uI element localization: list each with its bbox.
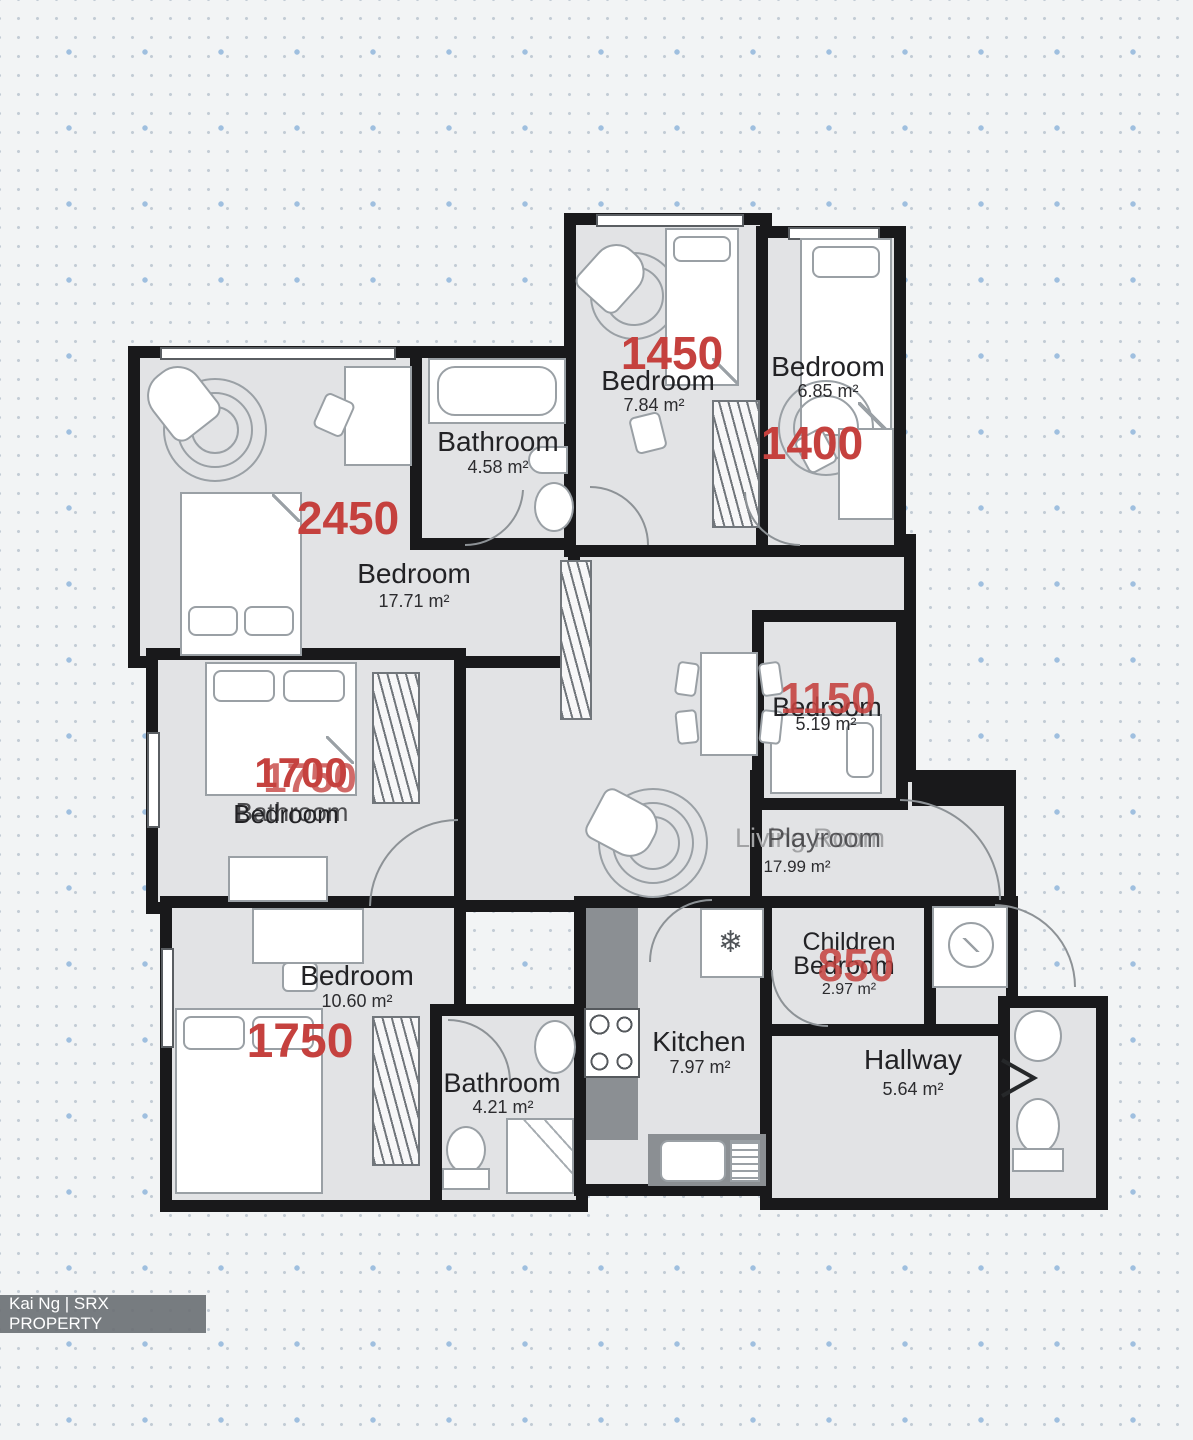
room-area: 4.58 m² [467,458,528,476]
desk-icon [252,908,364,964]
room-area: 2.97 m² [822,982,876,998]
chair-icon [674,661,701,698]
wardrobe-icon [372,672,420,804]
wardrobe-icon [712,400,760,528]
pillow-icon [188,606,238,636]
wardrobe-icon [372,1016,420,1166]
pillow-icon [183,1016,245,1050]
room-area: 7.97 m² [669,1058,730,1076]
price-label: 1750 [247,1018,354,1066]
window [147,732,160,828]
room-name: Bedroom [771,353,885,382]
fridge-snowflake-icon: ❄ [718,928,743,958]
room-name: Kitchen [652,1028,745,1057]
shaft-icon [560,560,592,720]
room-area: 6.85 m² [797,382,858,400]
stove-icon [584,1008,640,1078]
price-label: 1700 [254,752,347,794]
room-name: Hallway [864,1046,962,1075]
sink-icon [534,1020,576,1074]
kitchen-sink-icon [660,1140,726,1182]
pillow-icon [812,246,880,278]
watermark-text: Kai Ng | SRX PROPERTY [9,1294,206,1334]
price-label: 2450 [297,495,399,541]
toilet-bowl-icon [1016,1098,1060,1154]
toilet-tank-icon [1012,1148,1064,1172]
drainer-icon [730,1140,760,1182]
room-name-ghost: Playroom [767,825,881,853]
room-name: Bedroom [233,801,339,828]
sink-icon [1014,1010,1062,1062]
window [160,347,396,360]
pillow-icon [213,670,275,702]
window [161,948,174,1048]
toilet-tank-icon [442,1168,490,1190]
room-name: Bedroom [357,560,471,589]
floorplan-page: { "colors": { "price_red": "#c5413e", "w… [0,0,1193,1440]
room-area: 5.19 m² [795,715,856,733]
dining-table-icon [700,652,758,756]
chair-icon [674,709,699,745]
room-name: Bedroom [300,962,414,991]
room-area: 5.64 m² [882,1080,943,1098]
window [596,214,744,227]
sink-icon [534,482,574,532]
room-area: 17.71 m² [378,592,449,610]
blanket-fold-icon [272,494,300,522]
desk-icon [228,856,328,902]
desk-icon [344,366,412,466]
pillow-icon [283,670,345,702]
pillow-icon [244,606,294,636]
room-name: Bathroom [437,428,558,457]
pillow-icon [673,236,731,262]
price-label: 1400 [761,420,863,466]
room-area: 17.99 m² [763,858,830,875]
shower-icon [506,1118,574,1194]
room-area: 4.21 m² [472,1098,533,1116]
room-name: Bathroom [443,1070,560,1098]
room-area: 7.84 m² [623,396,684,414]
washer-wave-icon [958,938,984,952]
toilet-bowl-icon [446,1126,486,1174]
wall-segment [912,778,1008,806]
room-area: 10.60 m² [321,992,392,1010]
floor-plan: ❄ 2450 Bedroom 17.71 m² Bathroom 4.58 m²… [0,0,1193,1440]
room-name: Bedroom [601,367,715,396]
watermark-credit: Kai Ng | SRX PROPERTY [0,1295,206,1333]
bathtub-inner-icon [437,366,557,416]
